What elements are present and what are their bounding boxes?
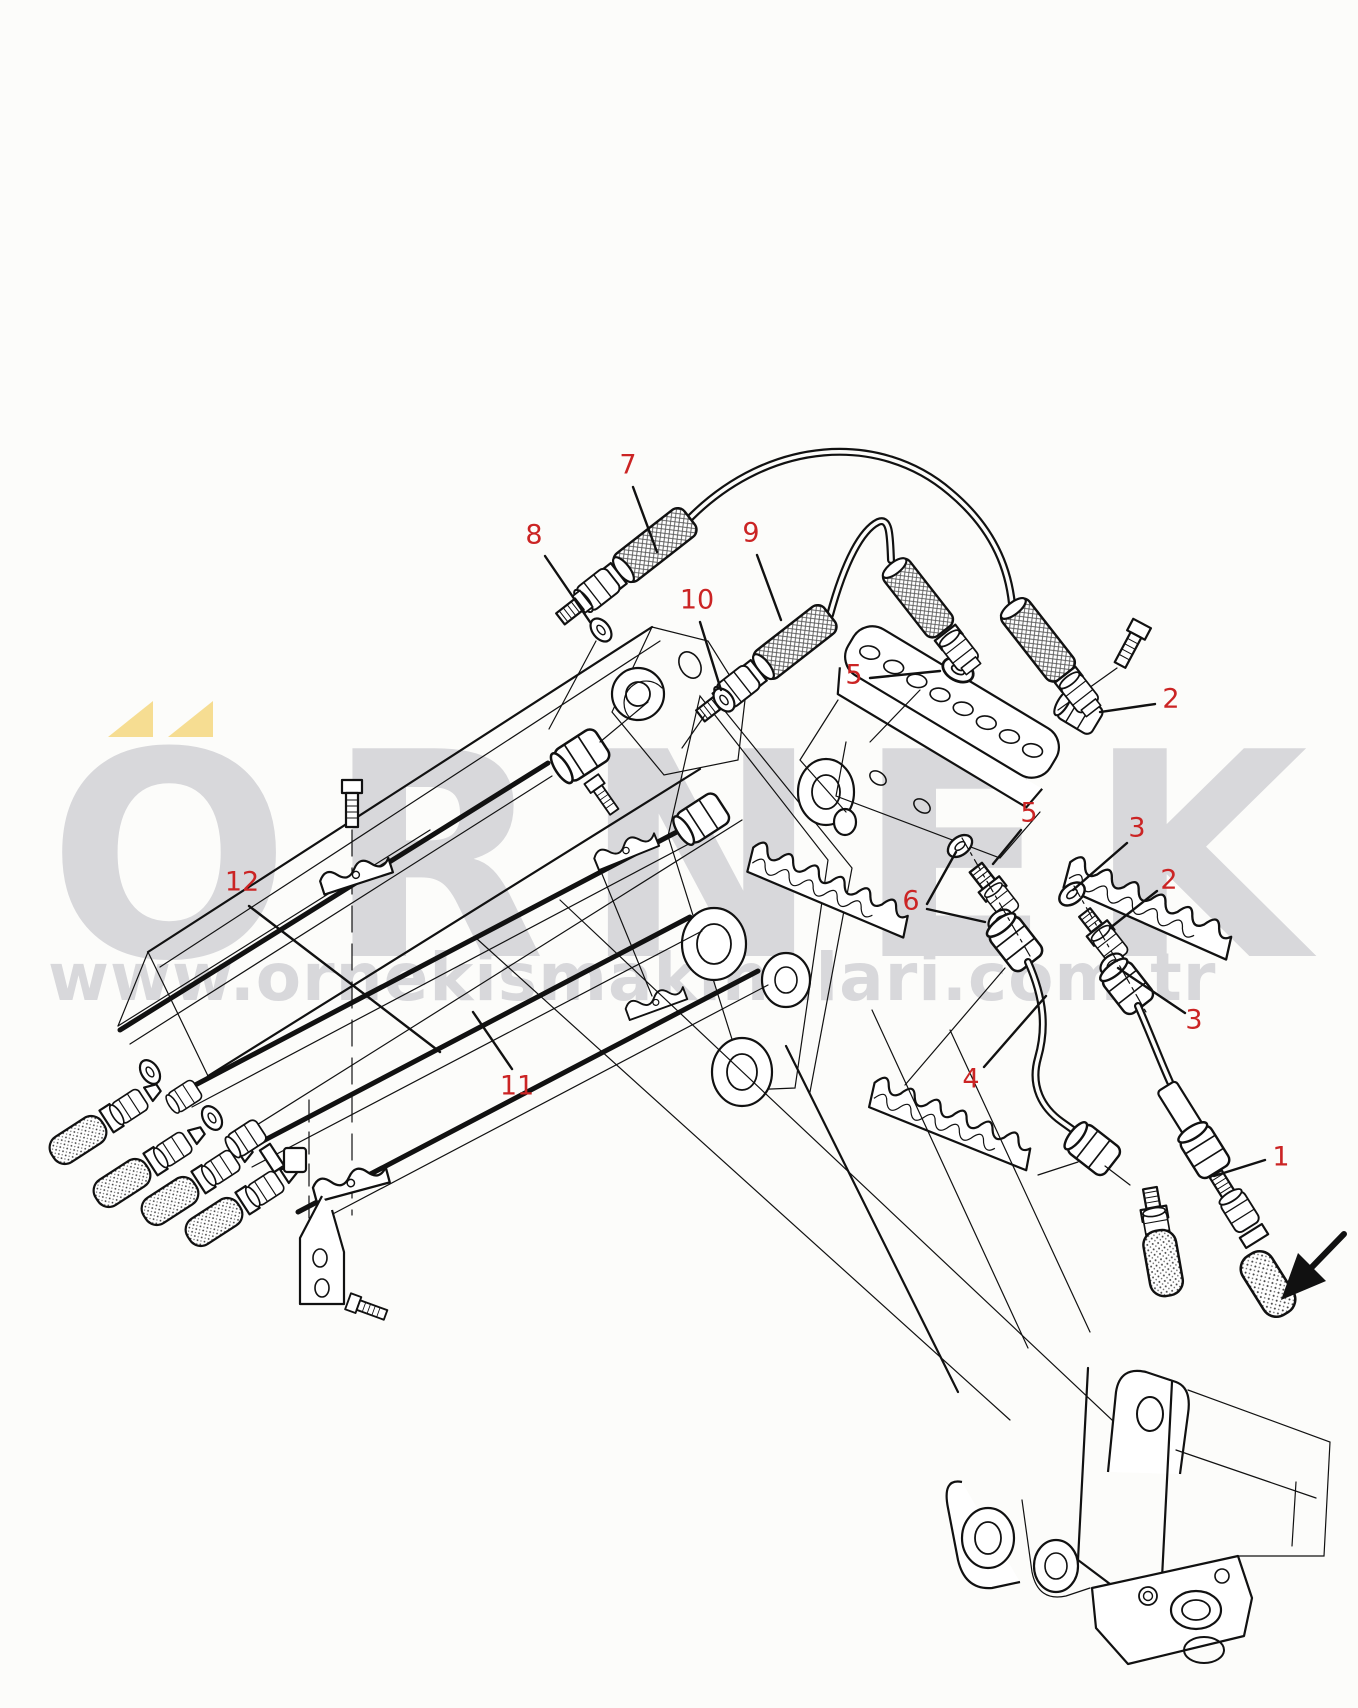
top-lug: [1108, 1371, 1189, 1474]
o-ring-8: [586, 615, 615, 646]
parts-diagram-page: ORNEK www.ornekismakinalari.com.tr: [0, 0, 1358, 1708]
hose-fitting-7: [550, 505, 700, 633]
callout-number-3: 3: [1185, 1005, 1202, 1036]
hose-quick-couplers-left: [45, 1056, 306, 1250]
callout-number-2: 2: [1160, 865, 1177, 896]
callout-number-3: 3: [1128, 813, 1145, 844]
callout-number-8: 8: [525, 520, 542, 551]
callout-number-2: 2: [1162, 684, 1179, 715]
callout-number-5: 5: [1020, 798, 1037, 829]
boom-head-flange: [612, 668, 664, 720]
callout-number-9: 9: [742, 518, 759, 549]
pipe-clip: [284, 1148, 306, 1172]
callout-number-12: 12: [225, 867, 259, 898]
callout-number-10: 10: [680, 585, 714, 616]
callout-number-6: 6: [902, 886, 919, 917]
callout-number-11: 11: [500, 1071, 534, 1102]
callout-number-4: 4: [962, 1064, 979, 1095]
callout-number-7: 7: [619, 450, 636, 481]
exploded-parts-drawing: ORNEK www.ornekismakinalari.com.tr: [0, 0, 1358, 1708]
clamp-bolt: [342, 780, 362, 827]
callout-number-1: 1: [1272, 1142, 1289, 1173]
direction-arrow: [1281, 1234, 1344, 1300]
callout-leader-9: [757, 555, 781, 620]
plate-bolt: [1111, 619, 1151, 670]
bracket-bolt: [345, 1293, 388, 1323]
callout-number-5: 5: [845, 660, 862, 691]
